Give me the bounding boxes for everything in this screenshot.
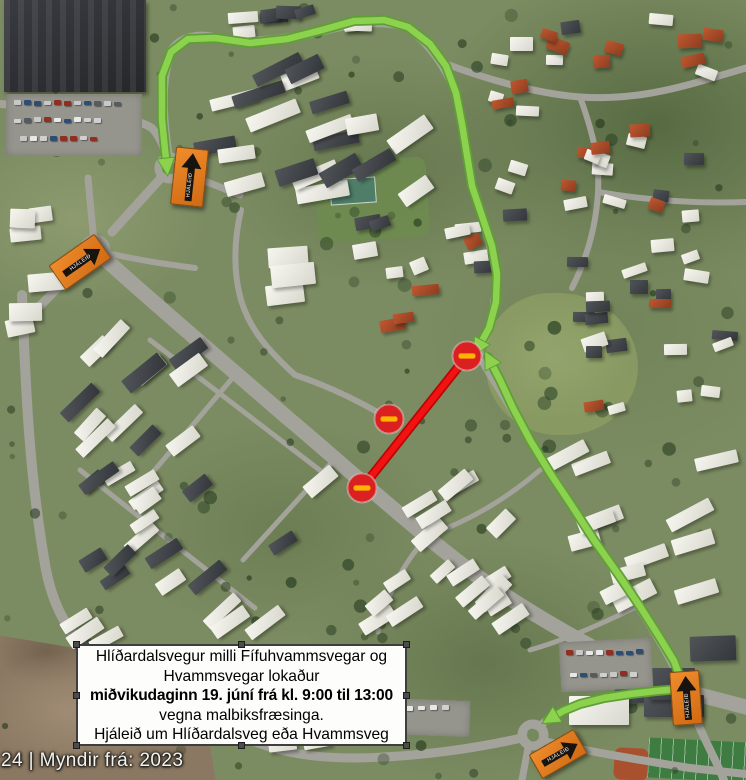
notice-line-3: miðvikudaginn 19. júní frá kl. 9:00 til …: [78, 686, 405, 706]
no-entry-sign: [375, 405, 404, 434]
route-arrowhead: [157, 157, 175, 176]
no-entry-sign: [348, 474, 377, 503]
selection-handle[interactable]: [73, 641, 80, 648]
notice-line-4: vegna malbiksfræsinga.: [78, 706, 405, 726]
route-line: [162, 20, 497, 350]
route-line: [488, 357, 681, 720]
selection-handle[interactable]: [403, 742, 410, 749]
imagery-attribution: 24 | Myndir frá: 2023: [1, 750, 183, 772]
selection-handle[interactable]: [403, 641, 410, 648]
selection-handle[interactable]: [73, 692, 80, 699]
selection-handle[interactable]: [403, 692, 410, 699]
notice-line-1: Hlíðardalsvegur milli Fífuhvammsvegar og: [78, 647, 405, 667]
selection-handle[interactable]: [238, 742, 245, 749]
selection-handle[interactable]: [238, 641, 245, 648]
map-screenshot: HJÁLEIÐHJÁLEIÐHJÁLEIÐHJÁLEIÐ Hlíðardalsv…: [0, 0, 746, 780]
closure-notice-box[interactable]: Hlíðardalsvegur milli Fífuhvammsvegar og…: [76, 644, 407, 746]
selection-handle[interactable]: [73, 742, 80, 749]
no-entry-sign: [453, 342, 482, 371]
notice-line-2: Hvammsvegar lokaður: [78, 667, 405, 687]
